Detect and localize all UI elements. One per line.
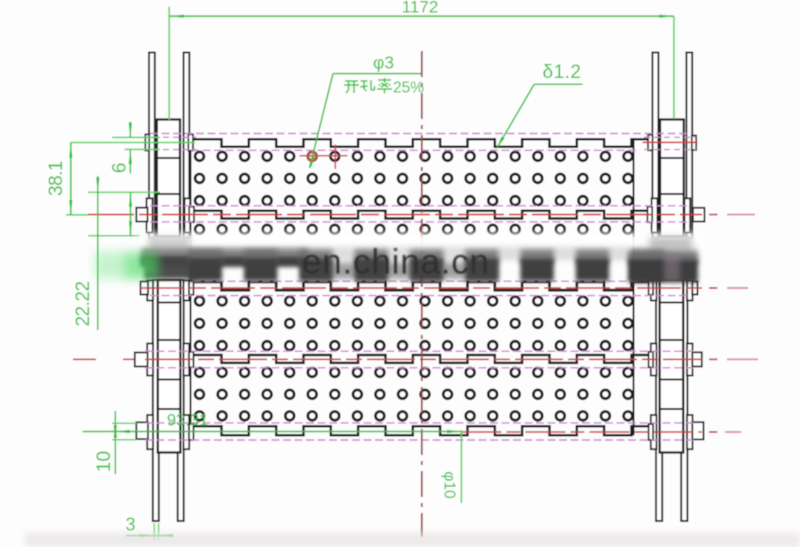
svg-text:φ10: φ10 <box>441 471 458 499</box>
svg-text:38.1: 38.1 <box>46 161 67 196</box>
svg-text:25%: 25% <box>393 80 424 97</box>
svg-text:10: 10 <box>94 451 115 472</box>
svg-text:δ1.2: δ1.2 <box>543 62 582 83</box>
svg-text:φ3: φ3 <box>373 53 394 73</box>
svg-text:1172: 1172 <box>402 0 439 17</box>
svg-text:en.china.cn: en.china.cn <box>302 243 490 282</box>
svg-text:6: 6 <box>110 163 131 174</box>
svg-text:3: 3 <box>125 515 135 535</box>
svg-text:93.31: 93.31 <box>167 412 208 430</box>
svg-text:22.22: 22.22 <box>73 281 94 326</box>
